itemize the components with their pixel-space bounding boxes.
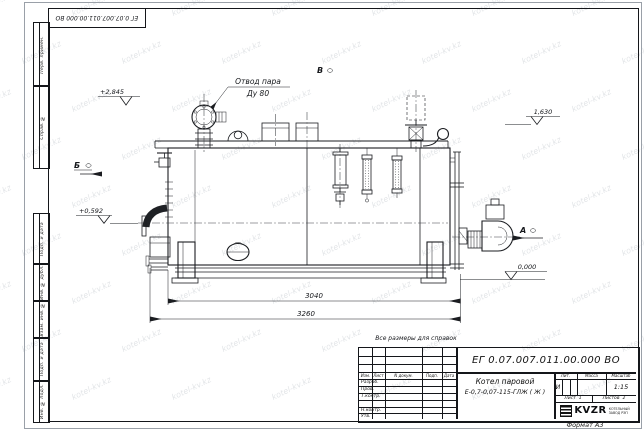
sheet-cell: Лист 1 bbox=[554, 395, 592, 402]
margin-box-podp-data-1: Подп. и дата bbox=[33, 213, 50, 265]
sheet-value: 1 bbox=[579, 396, 582, 401]
margin-box-sprav-no: Справ. № bbox=[33, 85, 50, 169]
col-izm: Изм. bbox=[359, 372, 372, 379]
margin-box-vzam-inv: Взам. инв. № bbox=[33, 300, 50, 339]
margin-box-podp-data-2: Подп. и дата bbox=[33, 337, 50, 382]
sheets-cell: Листов 2 bbox=[592, 395, 636, 402]
scale-value: 1:15 bbox=[606, 379, 636, 395]
col-podp: Подп. bbox=[422, 372, 442, 379]
top-designation-text: ЕГ 0.07.007.011.00.000 ВО bbox=[56, 14, 138, 22]
mass-label: Масса bbox=[577, 372, 606, 379]
drawing-sheet: kotel-kv.kzkotel-kv.kzkotel-kv.kzkotel-k… bbox=[0, 0, 644, 430]
product-model: Е-0,7-0,07-115-ГЛЖ ( Ж ) bbox=[465, 389, 545, 396]
margin-label: Инв. № подл. bbox=[41, 384, 46, 419]
company-line2: ЗАВОД РЭП bbox=[609, 411, 630, 415]
margin-label: Подп. и дата bbox=[41, 342, 46, 376]
sheets-value: 2 bbox=[622, 396, 625, 401]
margin-label: Инв. № дубл. bbox=[41, 265, 46, 300]
margin-box-inv-dubl: Инв. № дубл. bbox=[33, 263, 50, 302]
row-razrab: Разраб. bbox=[359, 379, 387, 386]
margin-label: Подп. и дата bbox=[41, 222, 46, 256]
company-cell: KVZR КОТЕЛЬНЫЙ ЗАВОД РЭП bbox=[554, 402, 636, 419]
lit-label: Лит. bbox=[554, 372, 577, 379]
margin-box-inv-podl: Инв. № подл. bbox=[33, 380, 50, 423]
margin-label: Перв. примен. bbox=[41, 36, 46, 74]
kvzr-logo-text: KVZR bbox=[574, 405, 606, 416]
scale-label: Масштаб bbox=[606, 372, 636, 379]
margin-label: Взам. инв. № bbox=[41, 302, 46, 336]
title-block: Изм. Лист N докум. Подп. Дата Разраб. Пр… bbox=[358, 347, 640, 423]
row-blank bbox=[359, 400, 387, 407]
top-designation-stamp: ЕГ 0.07.007.011.00.000 ВО bbox=[48, 8, 146, 28]
product-name: Котел паровой bbox=[476, 377, 535, 386]
lit-value: И bbox=[554, 379, 562, 395]
sheet-label: Лист bbox=[564, 396, 575, 401]
col-list: Лист bbox=[372, 372, 385, 379]
designation: ЕГ 0.07.007.011.00.000 ВО bbox=[456, 348, 636, 372]
row-utv: Утв. bbox=[359, 413, 387, 419]
margin-box-perv-primen: Перв. примен. bbox=[33, 22, 50, 87]
row-tkontr: Т.контр. bbox=[359, 393, 387, 400]
sheets-label: Листов bbox=[603, 396, 620, 401]
company-subtitle: КОТЕЛЬНЫЙ ЗАВОД РЭП bbox=[609, 407, 630, 415]
mass-value bbox=[577, 379, 606, 395]
row-prov: Пров. bbox=[359, 386, 387, 393]
product-name-cell: Котел паровой Е-0,7-0,07-115-ГЛЖ ( Ж ) bbox=[456, 372, 554, 424]
format-label: Формат А3 bbox=[540, 421, 630, 429]
margin-label: Справ. № bbox=[41, 115, 46, 140]
kvzr-logo-icon bbox=[560, 405, 572, 417]
col-ndokum: N докум. bbox=[385, 372, 422, 379]
col-data: Дата bbox=[442, 372, 456, 379]
